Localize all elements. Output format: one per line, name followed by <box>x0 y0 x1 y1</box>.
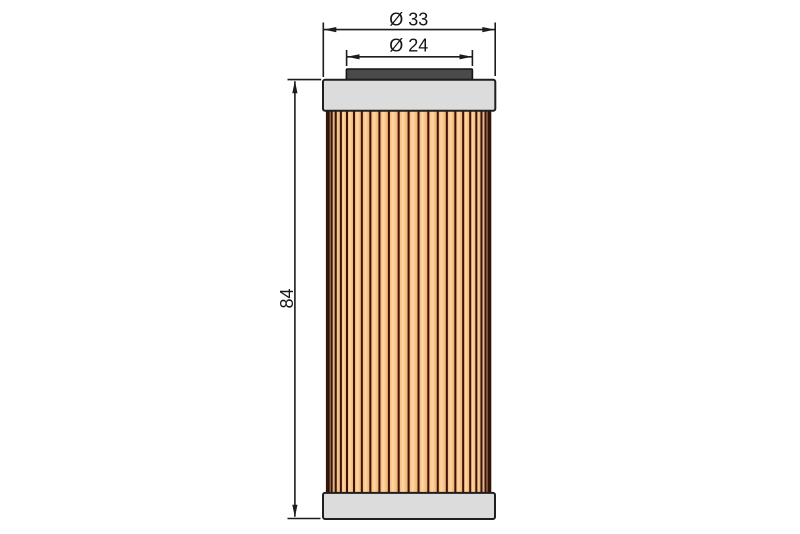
svg-text:84: 84 <box>277 288 297 308</box>
svg-text:Ø 24: Ø 24 <box>389 35 428 55</box>
svg-text:Ø 33: Ø 33 <box>389 10 428 30</box>
